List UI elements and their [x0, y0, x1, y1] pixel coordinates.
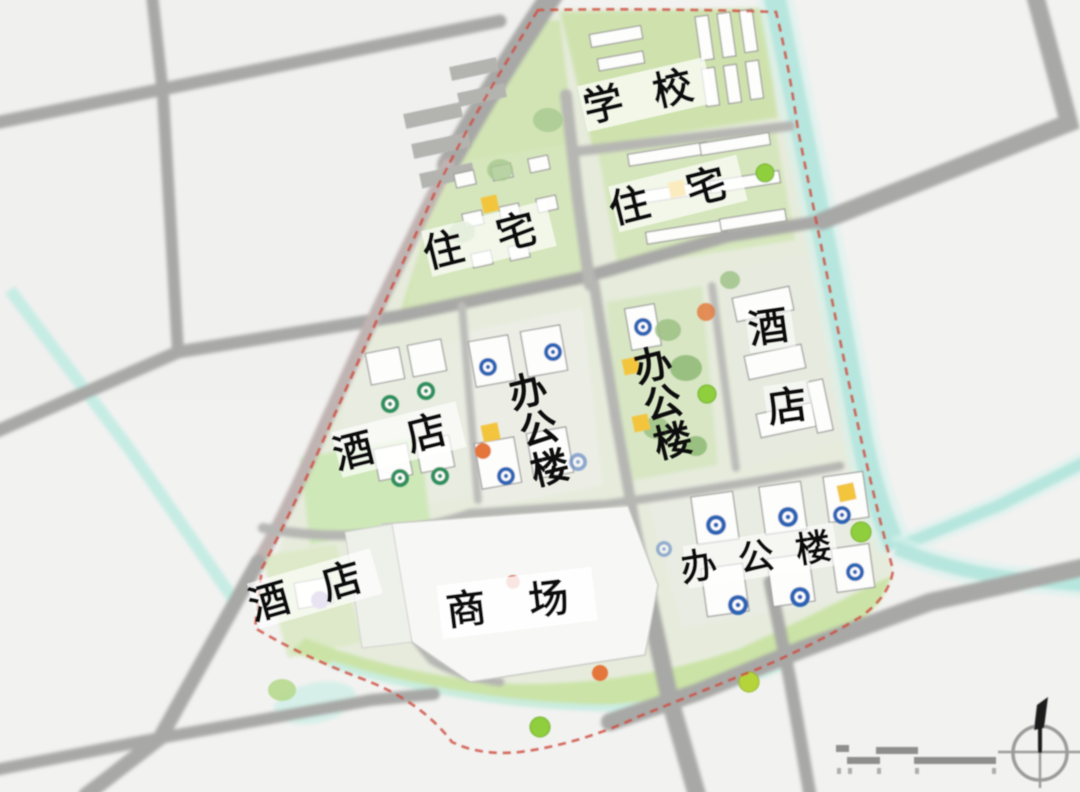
autumn-tree-icon — [697, 303, 715, 321]
site-plan-canvas: 学 校 住 宅 住 宅 酒 店 办 公 楼 办 公 楼 酒 店 酒 店 办 公 … — [0, 0, 1080, 792]
master-plan-map: 学 校 住 宅 住 宅 酒 店 办 公 楼 办 公 楼 酒 店 酒 店 办 公 … — [0, 0, 1080, 792]
svg-text:酒: 酒 — [745, 304, 791, 353]
svg-text:店: 店 — [764, 383, 810, 432]
